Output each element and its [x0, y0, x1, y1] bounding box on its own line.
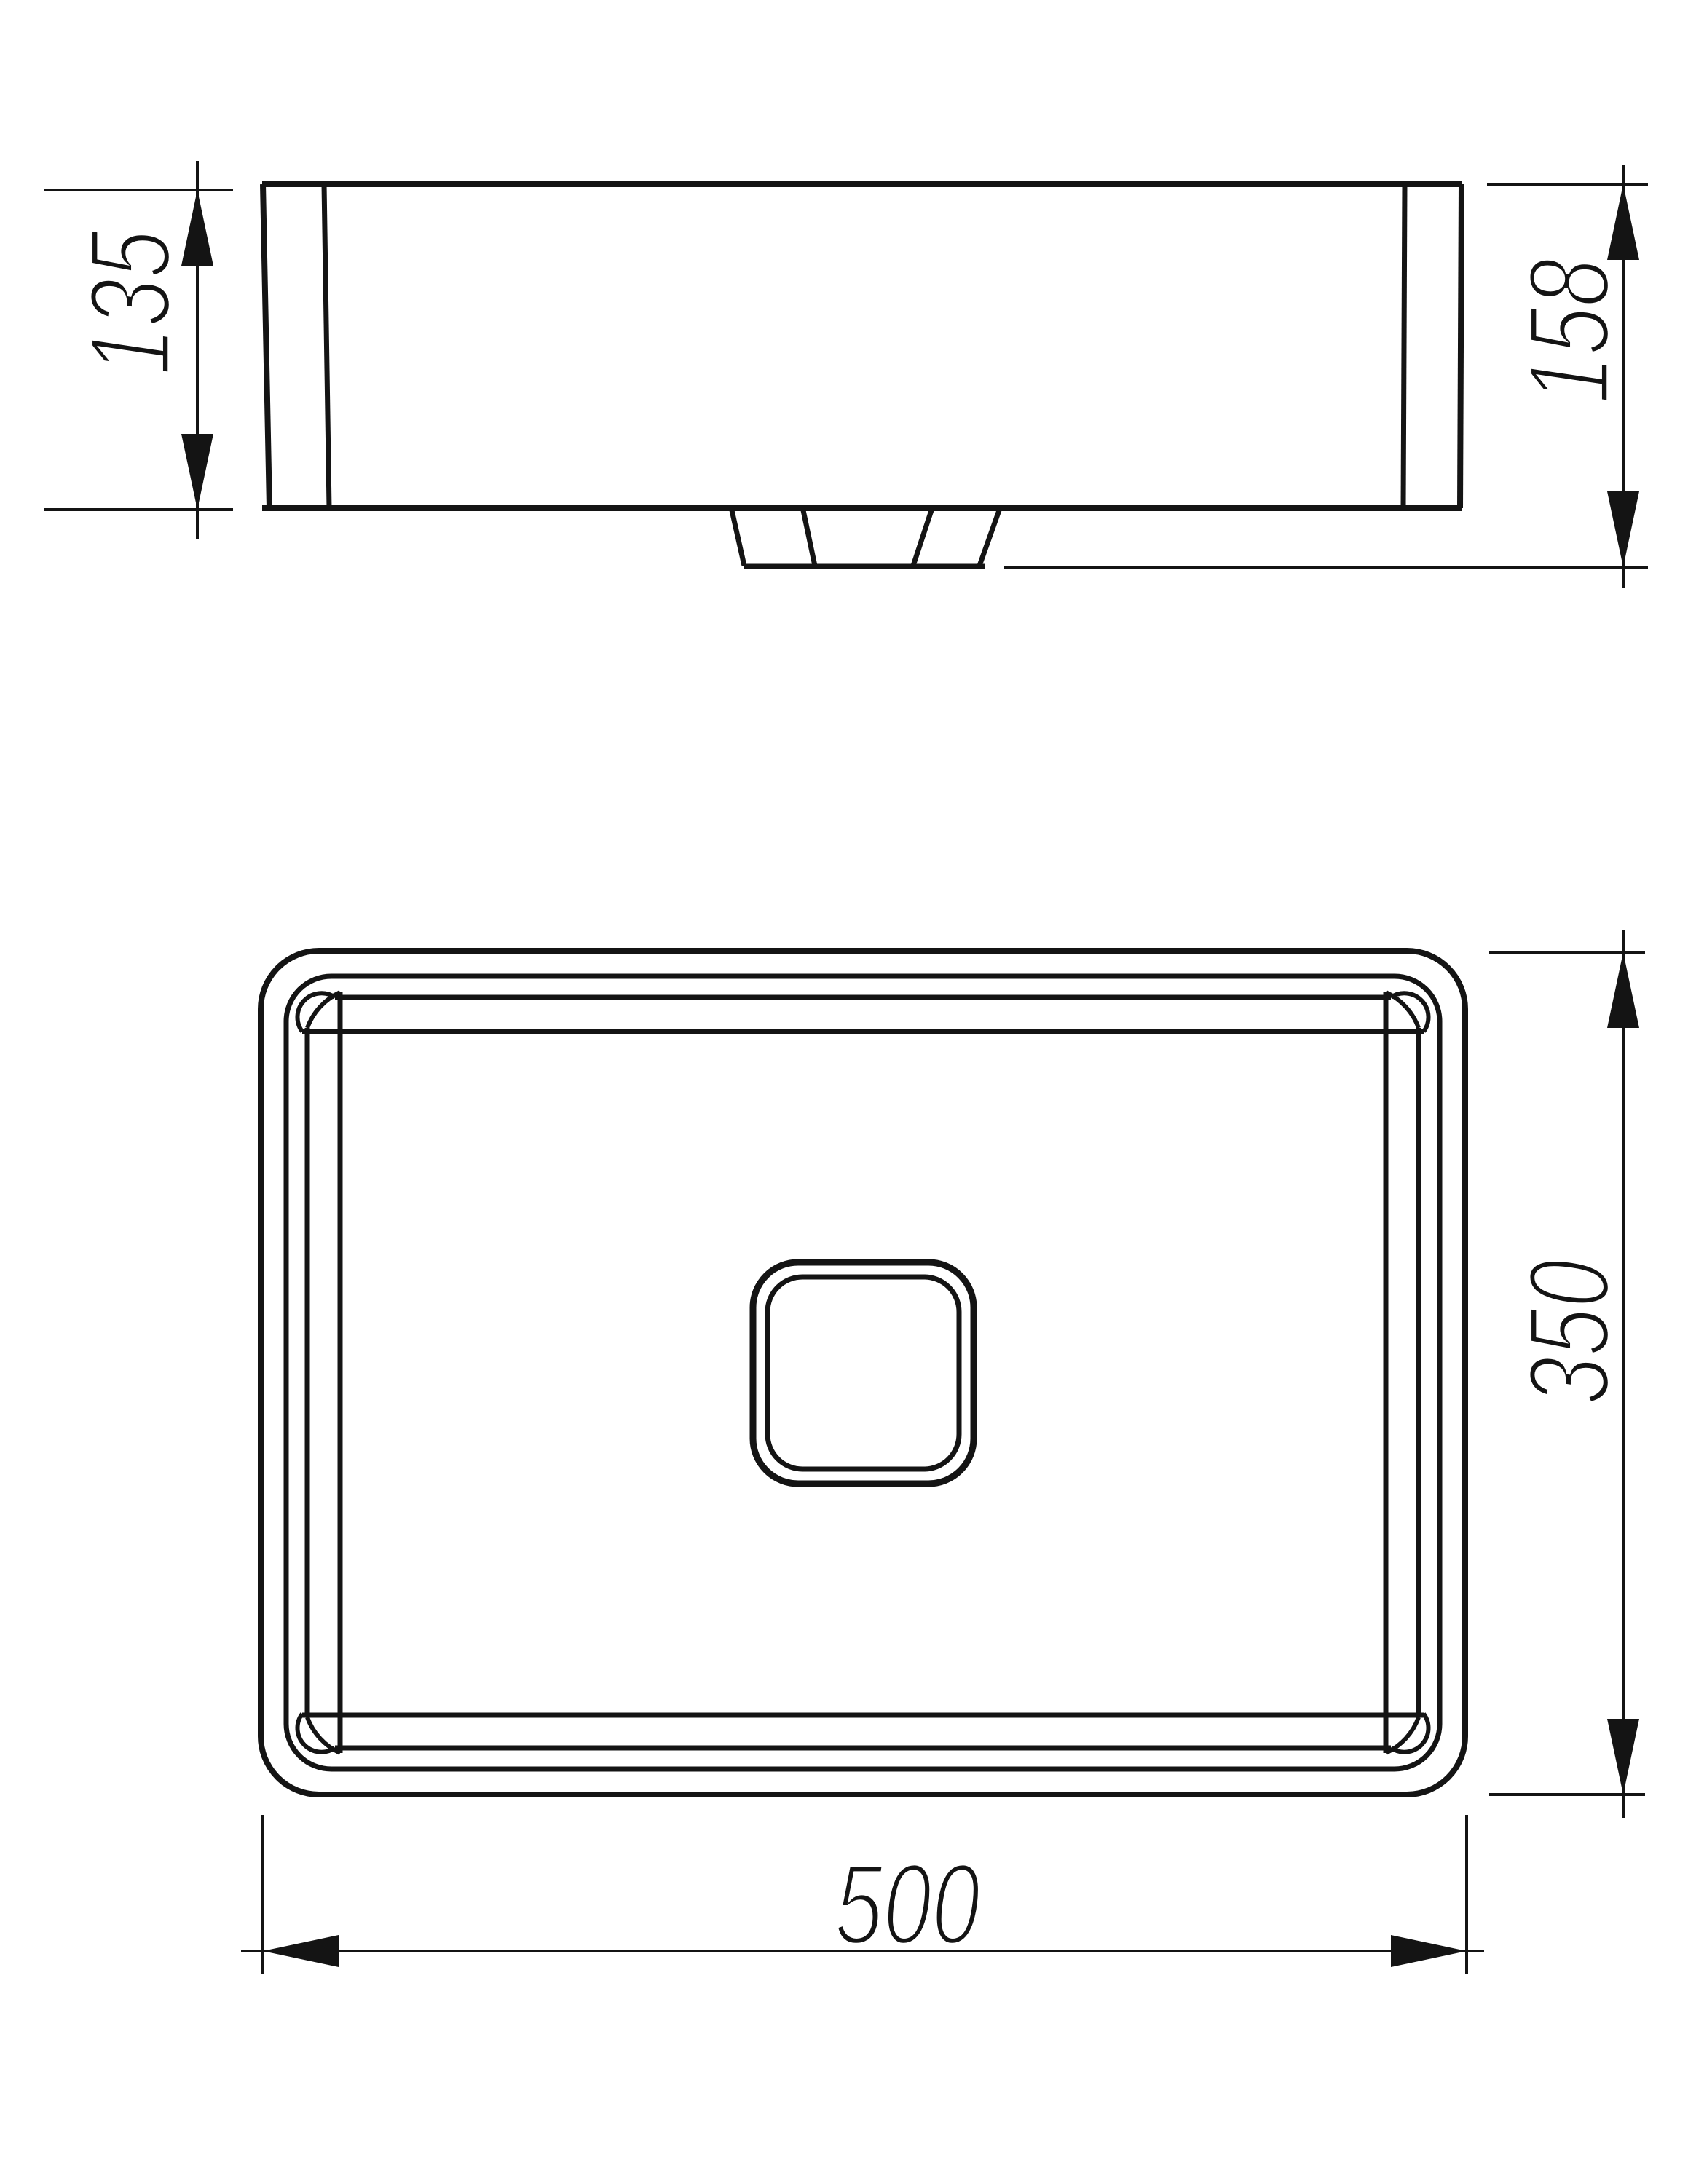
- svg-text:158: 158: [1505, 258, 1633, 404]
- svg-text:135: 135: [66, 229, 194, 376]
- svg-text:500: 500: [835, 1840, 980, 1969]
- svg-text:350: 350: [1505, 1259, 1633, 1405]
